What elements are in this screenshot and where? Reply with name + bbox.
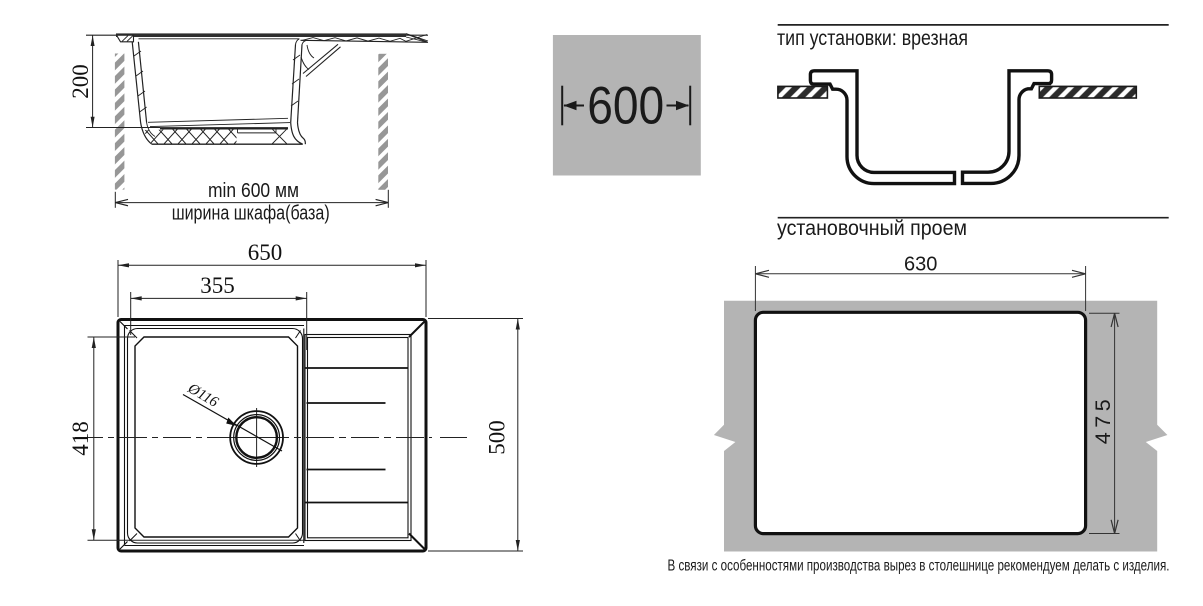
svg-text:630: 630 bbox=[904, 253, 937, 275]
svg-text:min 600 мм: min 600 мм bbox=[208, 180, 299, 202]
svg-text:500: 500 bbox=[485, 420, 510, 455]
svg-text:475: 475 bbox=[1091, 395, 1115, 444]
svg-text:200: 200 bbox=[68, 64, 93, 99]
svg-text:установочный проем: установочный проем bbox=[777, 216, 967, 240]
svg-text:600: 600 bbox=[587, 77, 664, 136]
svg-text:тип установки: врезная: тип установки: врезная bbox=[777, 26, 968, 50]
svg-text:355: 355 bbox=[200, 273, 235, 298]
svg-text:ширина шкафа(база): ширина шкафа(база) bbox=[172, 202, 330, 224]
svg-text:650: 650 bbox=[248, 240, 283, 265]
svg-text:418: 418 bbox=[68, 421, 93, 456]
svg-text:В связи с особенностями произв: В связи с особенностями производства выр… bbox=[668, 558, 1170, 575]
